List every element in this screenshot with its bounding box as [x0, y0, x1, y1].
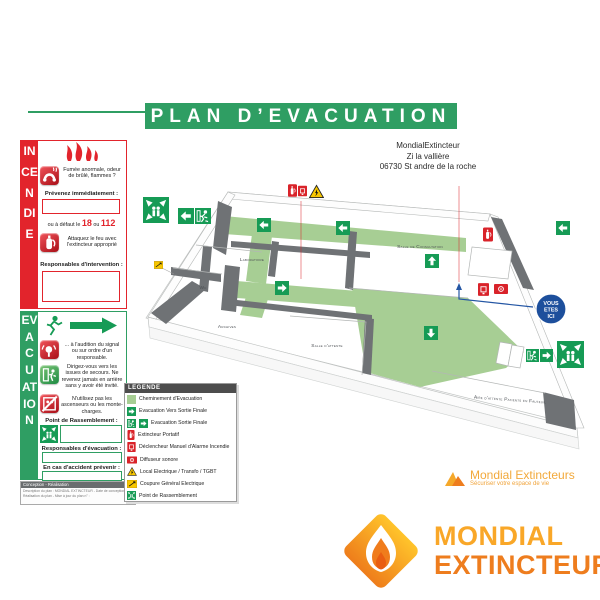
legend-item-rassemblement: Point de Rassemblement — [125, 490, 236, 502]
room-label-consultation: Salle de Consultation — [397, 244, 443, 250]
incendie-step2-text: Attaquez le feu avec l'extincteur approp… — [62, 236, 122, 249]
assembly-point-icon — [40, 425, 58, 443]
rassemblement-label: Point de Rassemblement : — [38, 418, 125, 424]
sounder-icon — [127, 456, 137, 464]
legend-box: LEGENDE Cheminement d'Evacuation Evacuat… — [124, 383, 237, 502]
exit-pictogram-icon — [42, 314, 122, 337]
extinguisher-icon — [483, 228, 493, 242]
responsables-evac-write-in-box — [42, 452, 122, 463]
fallback-number-112: 112 — [101, 218, 116, 228]
brand-logo-small: Mondial Extincteurs Sécuriser votre espa… — [443, 468, 575, 488]
responsables-write-in-box — [42, 271, 120, 302]
assembly-point-icon — [557, 341, 584, 368]
you-are-here-line2: ETES — [544, 308, 558, 314]
flame-diamond-icon — [338, 508, 424, 594]
exit-sign-left-icon — [178, 208, 211, 224]
evacuation-plan-poster: PLAN D’EVACUATION MondialExtincteur Zi l… — [0, 0, 600, 600]
brand-tagline: Sécuriser votre espace de vie — [470, 481, 575, 488]
exit-direction-icon — [40, 365, 59, 384]
legend-item-cheminement: Cheminement d'Evacuation — [125, 393, 236, 405]
extinguisher-icon — [127, 430, 135, 440]
phone-alert-icon — [40, 166, 59, 185]
evacuation-vertical-label: EVACUATION — [21, 312, 38, 479]
arrow-right-icon — [139, 419, 148, 428]
legend-item-declencheur: Déclencheur Manuel d'Alarme Incendie — [125, 441, 236, 453]
extinguisher-panel-icon — [40, 233, 59, 252]
notify-label: Prévenez immédiatement : — [38, 191, 125, 197]
assembly-point-icon — [127, 491, 136, 500]
rassemblement-write-in-box — [60, 425, 122, 443]
incendie-step1-text: Fumée anormale, odeur de brûlé, flammes … — [62, 167, 122, 180]
manual-call-point-icon — [478, 283, 489, 296]
incendie-content: Fumée anormale, odeur de brûlé, flammes … — [38, 141, 125, 308]
legend-item-diffuseur: Diffuseur sonore — [125, 453, 236, 465]
fallback-or: ou — [93, 222, 99, 228]
brand-logo-large: MONDIAL EXTINCTEUR — [338, 508, 600, 594]
sounder-icon — [494, 284, 508, 294]
fallback-numbers: ou à défaut le 18 ou 112 — [38, 218, 125, 228]
brand-name-line2: EXTINCTEUR — [434, 551, 600, 580]
conception-footer: Conception - Réalisation Description du … — [20, 481, 136, 505]
room-label-laboratoire: Laboratoire — [240, 257, 264, 263]
responsables-intervention-label: Responsables d'intervention : — [38, 262, 125, 268]
evacuation-step1-text: ... à l'audition du signal ou sur ordre … — [61, 342, 123, 361]
manual-call-point-icon — [298, 186, 307, 197]
legend-item-sortie-finale: Evacuation Sortie Finale — [125, 417, 236, 429]
you-are-here-line1: VOUS — [543, 301, 559, 307]
alarm-signal-icon — [40, 340, 59, 359]
warning-triangle-icon — [127, 467, 137, 476]
warning-triangle-icon — [310, 185, 324, 197]
evacuation-step2-text: Dirigez-vous vers les issues de secours.… — [61, 364, 123, 390]
brand-name-small: Mondial Extincteurs — [470, 469, 575, 481]
flame-mountain-icon — [443, 468, 467, 488]
footer-line-1: Description du plan : MONDIAL EXTINCTEUR… — [21, 488, 135, 494]
power-cut-icon — [127, 480, 137, 488]
evacuation-content: ... à l'audition du signal ou sur ordre … — [38, 312, 125, 479]
room-label-salle-attente: Salle d'attente — [311, 343, 342, 349]
room-label-archives: Archives — [218, 324, 236, 330]
brand-name-line1: MONDIAL — [434, 522, 600, 551]
fallback-number-18: 18 — [82, 218, 92, 228]
no-elevator-icon — [40, 394, 59, 413]
evacuation-panel: EVACUATION ... à l'audition du signal ou… — [20, 311, 127, 480]
notify-write-in-box — [42, 199, 120, 214]
incendie-panel: INCENDIE Fumée anormale, odeur de brûlé,… — [20, 140, 127, 309]
accident-write-in-box — [42, 471, 122, 481]
room-label-wc: Wc — [199, 285, 207, 291]
arrow-right-icon — [127, 407, 136, 416]
path-swatch-icon — [127, 395, 136, 404]
manual-call-point-icon — [127, 442, 136, 452]
assembly-point-icon — [143, 197, 169, 223]
legend-item-coupure: Coupure Général Electrique — [125, 478, 236, 490]
legend-item-vers-sortie: Evacuation Vers Sortie Finale — [125, 405, 236, 417]
fallback-prefix: ou à défaut le — [48, 222, 81, 228]
legend-item-extincteur: Extincteur Portatif — [125, 429, 236, 441]
legend-item-local-electrique: Local Electrique / Transfo / TGBT — [125, 466, 236, 478]
extinguisher-icon — [288, 184, 297, 197]
exit-man-icon — [127, 419, 136, 428]
you-are-here-line3: ICI — [548, 314, 555, 320]
power-cut-icon — [154, 261, 163, 268]
legend-title: LEGENDE — [125, 384, 236, 393]
flame-icon — [60, 142, 102, 162]
incendie-vertical-label: INCENDIE — [21, 141, 38, 308]
evacuation-step3-text: N'utilisez pas les ascenseurs ou les mon… — [61, 396, 123, 415]
footer-line-2: Réalisation du plan - Mise à jour du pla… — [21, 493, 135, 499]
